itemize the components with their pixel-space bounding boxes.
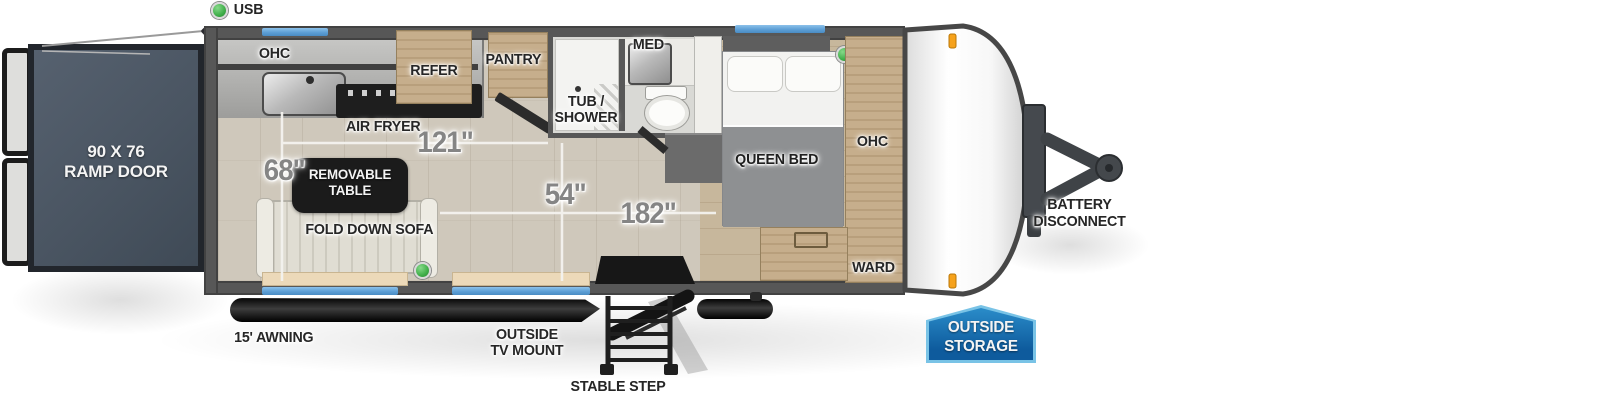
- dim-121: 121": [417, 126, 472, 160]
- battery-disconnect-label: BATTERYDISCONNECT: [1015, 196, 1143, 230]
- dimension-lines: [0, 0, 1600, 408]
- tv-mount-label: OUTSIDETV MOUNT: [470, 327, 584, 359]
- floorplan-canvas: USB 90 X 76RAMP DOOR OHC REFER PANTRY AI…: [0, 0, 1600, 408]
- awning-tube: [230, 298, 600, 322]
- outside-storage-label: OUTSIDESTORAGE: [929, 318, 1034, 356]
- stable-step-label: STABLE STEP: [571, 378, 666, 395]
- dim-68: 68": [264, 154, 305, 188]
- stable-step: [596, 252, 776, 378]
- clearance-light-bottom: [949, 274, 956, 288]
- awning-label: 15' AWNING: [234, 329, 313, 346]
- dim-182: 182": [620, 197, 675, 231]
- dim-54: 54": [545, 178, 586, 212]
- clearance-light-top: [949, 34, 956, 48]
